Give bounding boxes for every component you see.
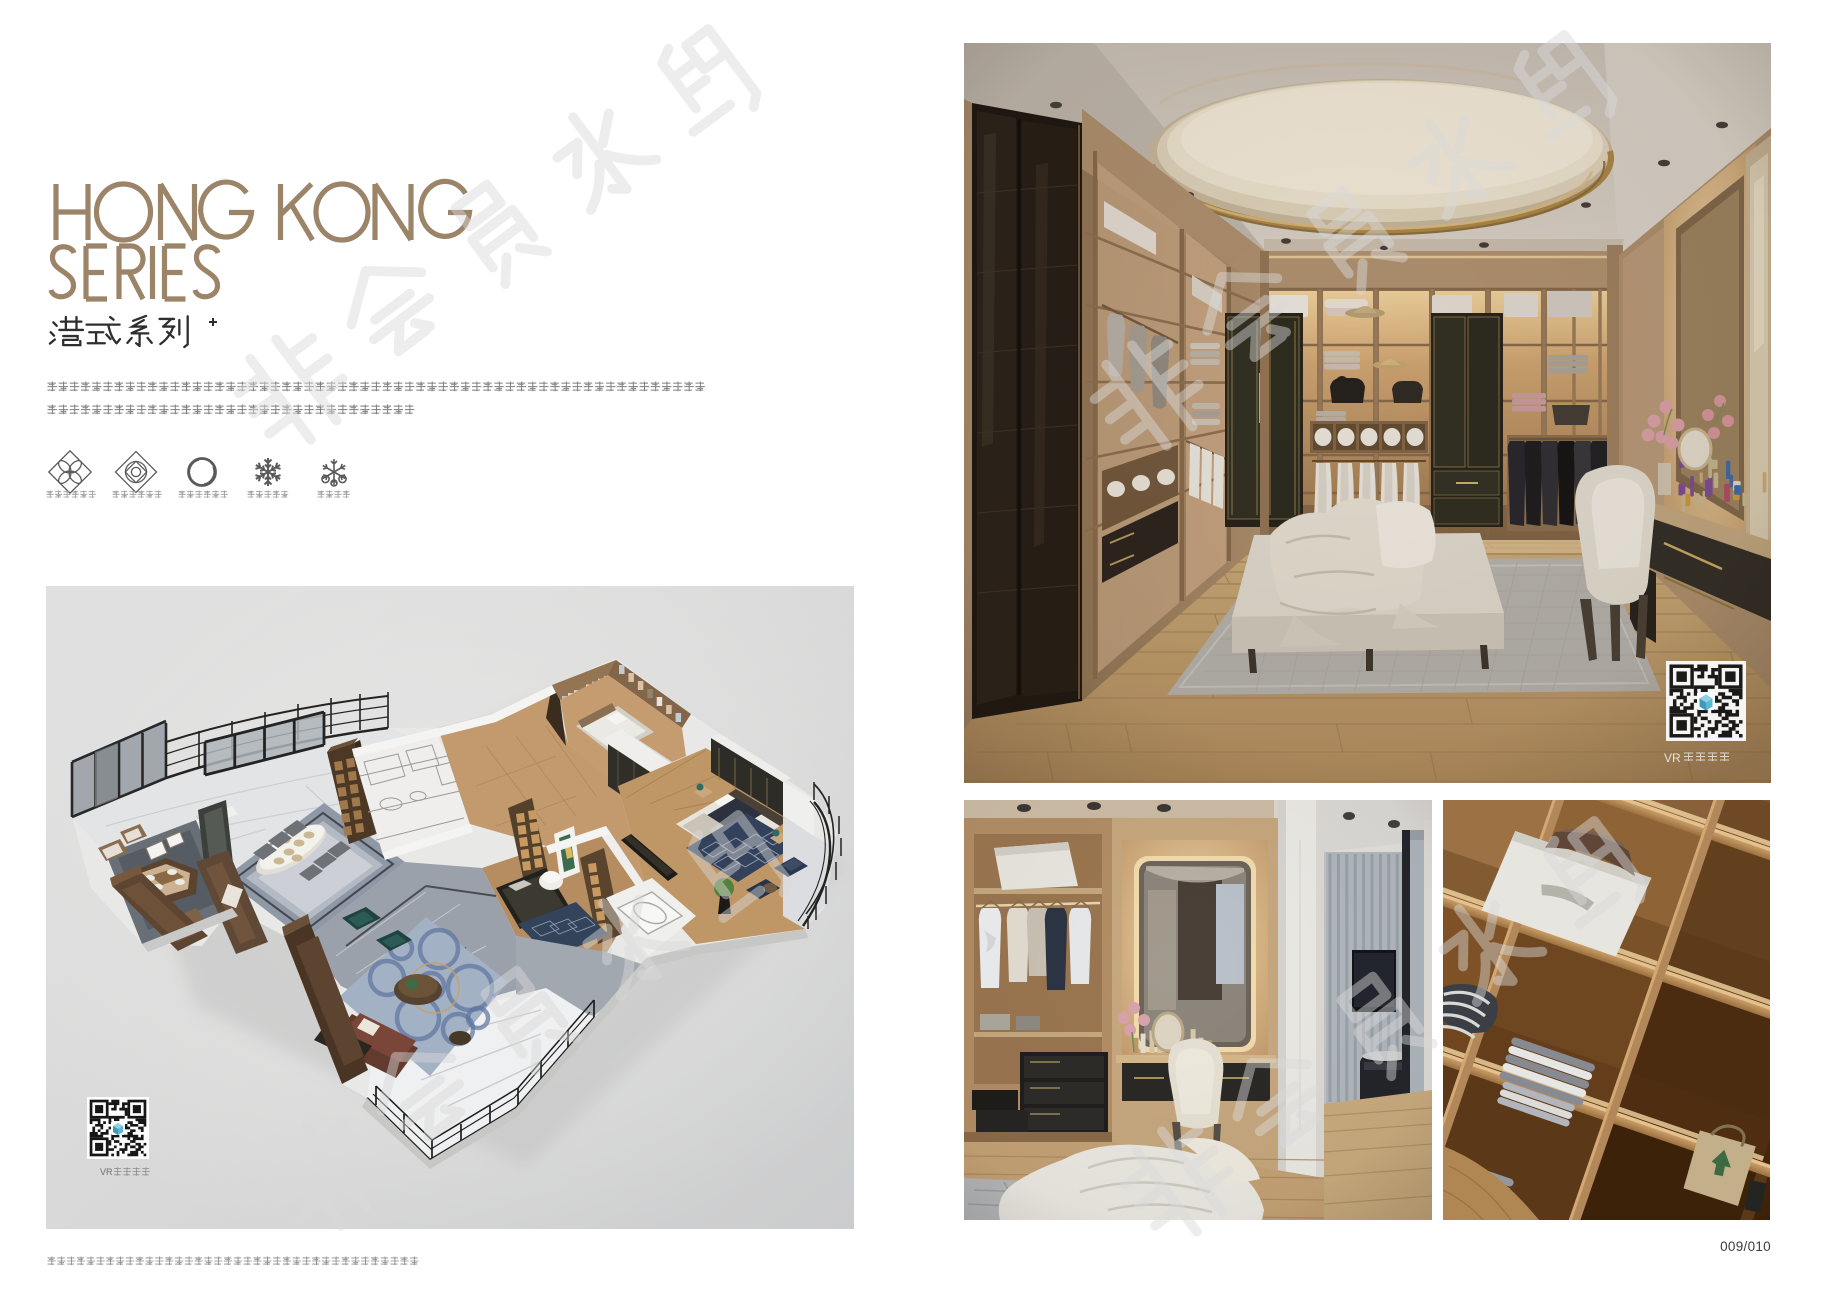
svg-text:VR: VR [1664,751,1681,765]
svg-text:VR: VR [100,1167,113,1177]
